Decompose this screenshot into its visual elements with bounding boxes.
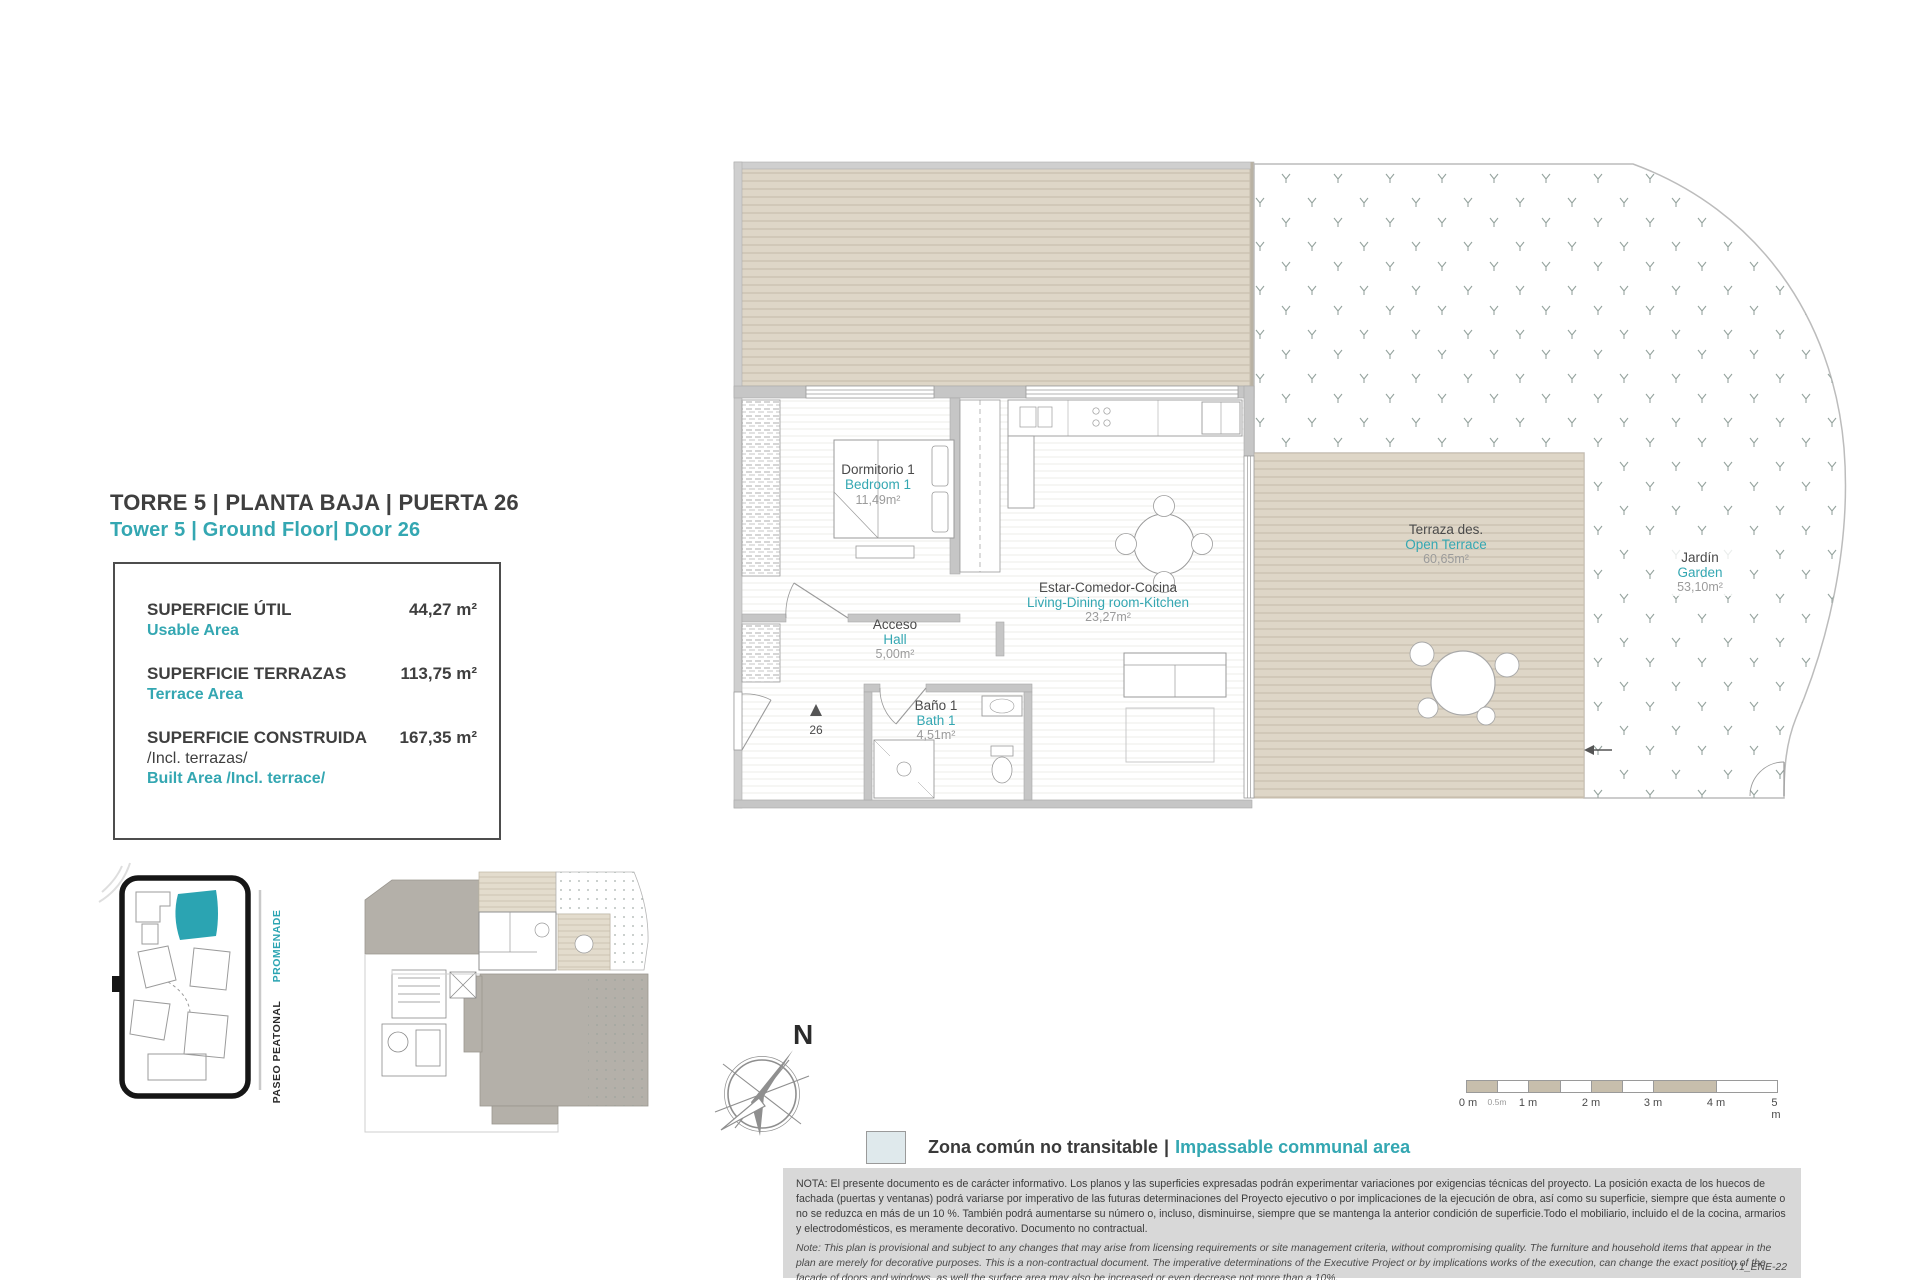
paseo-peatonal-label: PASEO PEATONAL bbox=[271, 1001, 283, 1104]
svg-text:Terraza des.: Terraza des. bbox=[1409, 522, 1483, 537]
svg-text:Acceso: Acceso bbox=[873, 617, 917, 632]
summary-value: 44,27 m² bbox=[409, 600, 477, 620]
highlighted-tower bbox=[175, 890, 218, 940]
summary-row-terrace: SUPERFICIE TERRAZAS 113,75 m² Terrace Ar… bbox=[147, 664, 477, 704]
svg-text:Living-Dining room-Kitchen: Living-Dining room-Kitchen bbox=[1027, 595, 1189, 610]
page-subtitle: Tower 5 | Ground Floor| Door 26 bbox=[110, 519, 420, 542]
summary-label-es2: /Incl. terrazas/ bbox=[147, 750, 477, 768]
summary-label-es: SUPERFICIE CONSTRUIDA bbox=[147, 728, 367, 748]
upper-terrace-deck bbox=[738, 168, 1250, 386]
key-core bbox=[382, 970, 476, 1076]
room-label-garden: Jardín Garden 53,10m² bbox=[1666, 548, 1734, 596]
svg-text:5,00m²: 5,00m² bbox=[876, 647, 915, 661]
svg-text:53,10m²: 53,10m² bbox=[1677, 580, 1723, 594]
svg-text:23,27m²: 23,27m² bbox=[1085, 610, 1131, 624]
summary-label-es: SUPERFICIE ÚTIL bbox=[147, 600, 292, 620]
scale-bar: 0 m 0.5m 1 m 2 m 3 m 4 m 5 m bbox=[1466, 1080, 1778, 1114]
floorplan-page: TORRE 5 | PLANTA BAJA | PUERTA 26 Tower … bbox=[0, 0, 1920, 1280]
svg-text:60,65m²: 60,65m² bbox=[1423, 552, 1469, 566]
svg-text:4,51m²: 4,51m² bbox=[917, 728, 956, 742]
scale-tick-4m: 4 m bbox=[1707, 1097, 1725, 1109]
summary-row-built: SUPERFICIE CONSTRUIDA 167,35 m² /Incl. t… bbox=[147, 728, 477, 788]
svg-text:Jardín: Jardín bbox=[1681, 550, 1719, 565]
svg-text:Baño 1: Baño 1 bbox=[915, 698, 958, 713]
summary-value: 113,75 m² bbox=[400, 664, 477, 684]
svg-text:Hall: Hall bbox=[883, 632, 906, 647]
svg-text:Bath 1: Bath 1 bbox=[916, 713, 955, 728]
summary-label-en: Built Area /Incl. terrace/ bbox=[147, 770, 477, 788]
svg-text:Garden: Garden bbox=[1677, 565, 1722, 580]
summary-row-usable: SUPERFICIE ÚTIL 44,27 m² Usable Area bbox=[147, 600, 477, 640]
svg-text:Bedroom 1: Bedroom 1 bbox=[845, 477, 911, 492]
scale-tick-2m: 2 m bbox=[1582, 1097, 1600, 1109]
legend-separator: | bbox=[1158, 1137, 1175, 1157]
legend-label-en: Impassable communal area bbox=[1175, 1137, 1410, 1157]
open-terrace-deck bbox=[1252, 453, 1584, 798]
legend-label-es: Zona común no transitable bbox=[928, 1137, 1158, 1157]
scale-tick-1m: 1 m bbox=[1519, 1097, 1537, 1109]
version-label: V.1_ENE-22 bbox=[1730, 1262, 1787, 1273]
site-gate bbox=[112, 976, 124, 992]
note-english: Note: This plan is provisional and subje… bbox=[796, 1242, 1788, 1280]
floor-key-minimap bbox=[352, 852, 654, 1144]
page-title: TORRE 5 | PLANTA BAJA | PUERTA 26 bbox=[110, 490, 519, 516]
key-subject-unit bbox=[479, 872, 648, 970]
svg-text:Estar-Comedor-Cocina: Estar-Comedor-Cocina bbox=[1039, 580, 1178, 595]
scale-tick-05m: 0.5m bbox=[1488, 1097, 1507, 1107]
summary-label-en: Usable Area bbox=[147, 622, 477, 640]
main-floor-plan: 26 Dormitorio 1 Bedroom 1 11,49m² Acceso… bbox=[728, 148, 1860, 823]
svg-text:Open Terrace: Open Terrace bbox=[1405, 537, 1487, 552]
area-summary-box: SUPERFICIE ÚTIL 44,27 m² Usable Area SUP… bbox=[113, 562, 501, 840]
summary-label-en: Terrace Area bbox=[147, 686, 477, 704]
compass-rose-icon: N bbox=[705, 1008, 835, 1146]
site-location-minimap: PROMENADE PASEO PEATONAL bbox=[98, 862, 313, 1120]
room-label-bath: Baño 1 Bath 1 4,51m² bbox=[915, 698, 958, 742]
entrance-number: 26 bbox=[809, 723, 823, 737]
note-spanish: NOTA: El presente documento es de caráct… bbox=[796, 1177, 1788, 1237]
scale-bar-segments bbox=[1466, 1080, 1778, 1093]
svg-text:Dormitorio 1: Dormitorio 1 bbox=[841, 462, 915, 477]
notes-box: NOTA: El presente documento es de caráct… bbox=[783, 1168, 1801, 1278]
scale-tick-0m: 0 m bbox=[1459, 1097, 1477, 1109]
compass-north-label: N bbox=[793, 1019, 813, 1050]
scale-tick-3m: 3 m bbox=[1644, 1097, 1662, 1109]
scale-tick-5m: 5 m bbox=[1771, 1097, 1780, 1121]
summary-label-es: SUPERFICIE TERRAZAS bbox=[147, 664, 346, 684]
svg-text:11,49m²: 11,49m² bbox=[856, 493, 901, 507]
legend-swatch bbox=[866, 1131, 906, 1164]
summary-value: 167,35 m² bbox=[400, 728, 478, 748]
promenade-label: PROMENADE bbox=[271, 910, 283, 983]
legend-text: Zona común no transitable|Impassable com… bbox=[928, 1137, 1410, 1158]
